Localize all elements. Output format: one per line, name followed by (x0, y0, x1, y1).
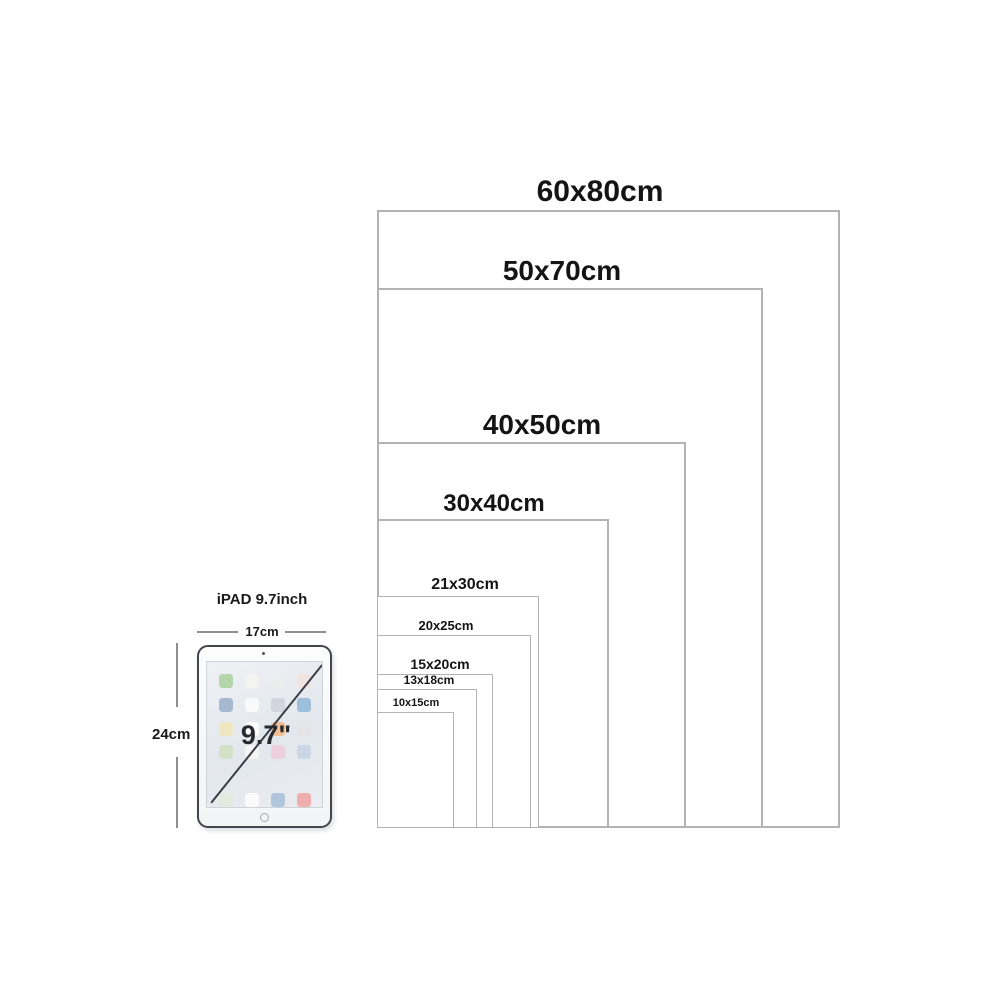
app-icon (297, 745, 311, 759)
width-dimension-line-right (285, 631, 326, 633)
size-label-50x70cm: 50x70cm (503, 257, 621, 285)
app-icon (297, 698, 311, 712)
app-icon (245, 674, 259, 688)
print-size-comparison-diagram: 60x80cm50x70cm40x50cm30x40cm21x30cm20x25… (0, 0, 1000, 1000)
ipad-home-button-icon (260, 813, 269, 822)
size-label-20x25cm: 20x25cm (419, 619, 474, 632)
height-dimension-line-bottom (176, 757, 178, 828)
dock-app-icon (271, 793, 285, 807)
ipad-title: iPAD 9.7inch (217, 591, 308, 608)
ipad-screen-size-label: 9.7" (241, 720, 291, 751)
size-label-10x15cm: 10x15cm (393, 698, 440, 709)
size-label-60x80cm: 60x80cm (537, 177, 664, 207)
ipad-device: 9.7" (197, 645, 332, 828)
ipad-screen: 9.7" (206, 661, 323, 808)
app-icon (219, 722, 233, 736)
dock-app-icon (219, 793, 233, 807)
ipad-height-label: 24cm (152, 726, 190, 743)
dock-app-icon (297, 793, 311, 807)
app-icon (219, 674, 233, 688)
size-label-21x30cm: 21x30cm (431, 577, 499, 593)
app-icon (219, 745, 233, 759)
width-dimension-line-left (197, 631, 238, 633)
dock-app-icon (245, 793, 259, 807)
size-label-40x50cm: 40x50cm (483, 411, 601, 439)
height-dimension-line-top (176, 643, 178, 707)
app-icon (297, 722, 311, 736)
size-label-30x40cm: 30x40cm (443, 492, 544, 516)
size-label-15x20cm: 15x20cm (410, 657, 469, 671)
app-icon (245, 698, 259, 712)
ipad-width-label: 17cm (245, 624, 278, 639)
app-icon (219, 698, 233, 712)
ipad-camera-icon (262, 652, 265, 655)
size-frame-10x15cm (377, 712, 454, 828)
size-label-13x18cm: 13x18cm (404, 674, 455, 686)
app-icon (271, 674, 285, 688)
